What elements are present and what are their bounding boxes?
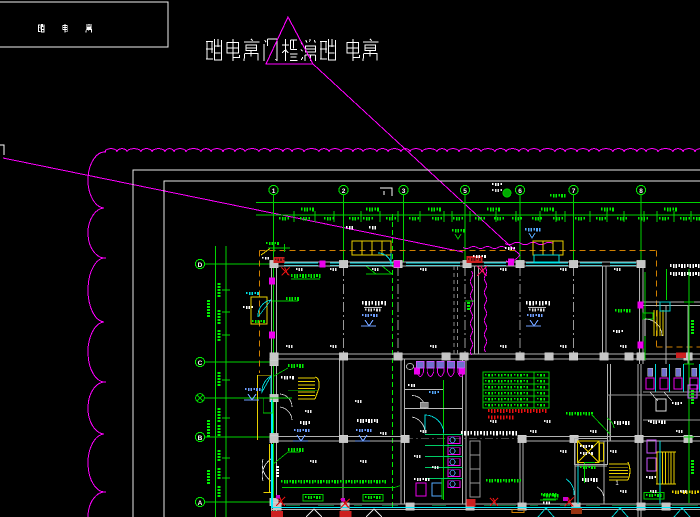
svg-text:5: 5 xyxy=(463,188,467,195)
svg-text:D: D xyxy=(198,262,203,269)
svg-text:A: A xyxy=(198,500,203,507)
svg-text:B: B xyxy=(198,435,203,442)
svg-text:7: 7 xyxy=(572,188,576,195)
svg-text:6: 6 xyxy=(518,188,522,195)
svg-text:1: 1 xyxy=(272,188,276,195)
svg-text:2: 2 xyxy=(342,188,346,195)
svg-text:C: C xyxy=(198,360,203,367)
svg-text:3: 3 xyxy=(402,188,406,195)
svg-text:8: 8 xyxy=(639,188,643,195)
